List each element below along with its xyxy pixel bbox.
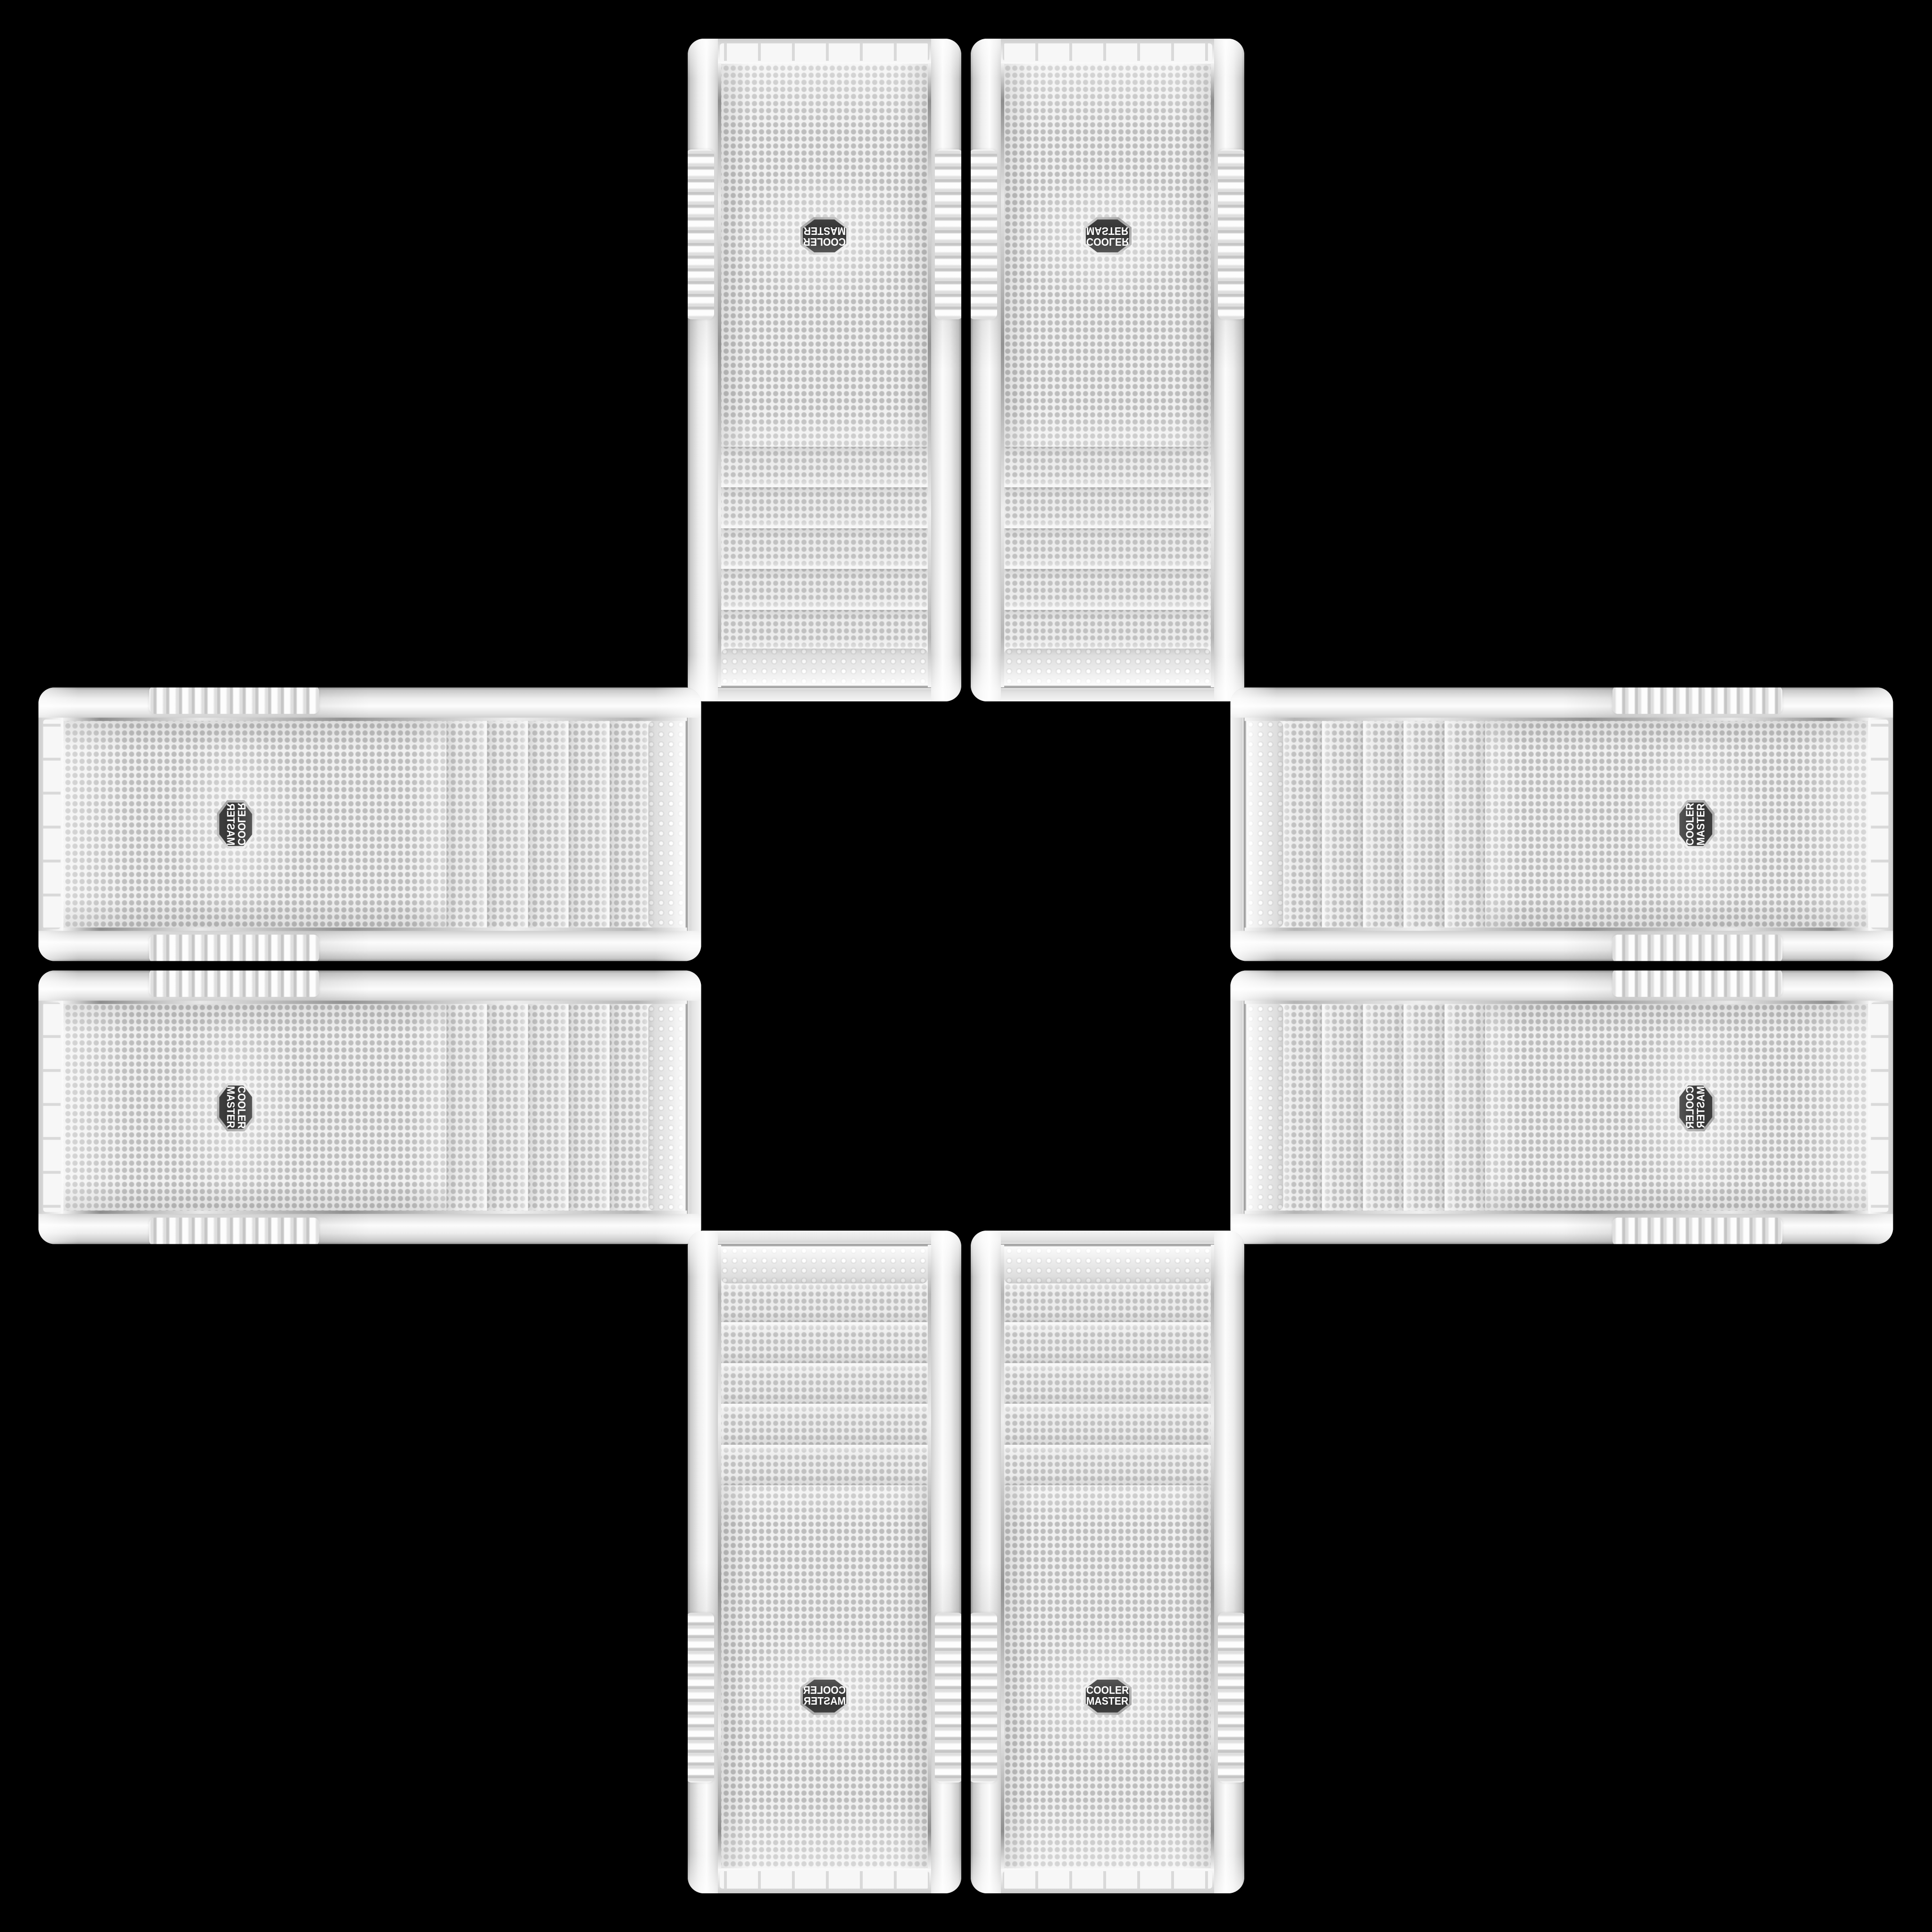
- chrome-trim-bar: [718, 1243, 931, 1247]
- chrome-trim-right: [1245, 718, 1869, 721]
- case-top-cap: [1001, 1231, 1214, 1243]
- case-front-panel: COOLER MASTER: [1231, 721, 1893, 928]
- case-bottom-cap: [718, 39, 931, 64]
- chrome-trim-right: [718, 63, 721, 687]
- side-grip-ribs: [1613, 935, 1782, 961]
- drive-bay-cover: [721, 1447, 928, 1485]
- case-bottom-cap: [718, 1868, 931, 1893]
- drive-bay-cover: [528, 721, 566, 928]
- side-grip-ribs: [150, 1218, 319, 1244]
- drive-bay-cover: [721, 569, 928, 608]
- pc-case-bottom-left: COOLER MASTER: [688, 1231, 961, 1893]
- chrome-trim-left: [63, 928, 687, 931]
- drive-bay-cover: [1406, 1004, 1444, 1211]
- drive-bay-cover: [721, 1406, 928, 1444]
- badge-text-line2: MASTER: [1696, 803, 1707, 845]
- chrome-trim-left: [63, 1001, 687, 1004]
- side-grip-ribs: [935, 1613, 961, 1782]
- badge-text-line2: MASTER: [1086, 225, 1128, 236]
- chrome-trim-bar: [1243, 718, 1247, 931]
- case-side-rail-left: [39, 931, 701, 961]
- case-top-cap: [1001, 689, 1214, 701]
- pc-case-left-bottom: COOLER MASTER: [39, 971, 701, 1244]
- top-vent-mesh: [649, 1004, 685, 1211]
- chrome-trim-bar: [1243, 1001, 1247, 1214]
- pc-case-top-left: COOLER MASTER: [688, 39, 961, 701]
- badge-text-line2: MASTER: [1696, 1086, 1707, 1128]
- drive-bay-covers: [1283, 1004, 1485, 1211]
- side-grip-ribs: [1218, 1613, 1244, 1782]
- chrome-trim-bar: [1001, 1243, 1214, 1247]
- drive-bay-cover: [721, 447, 928, 485]
- case-side-rail-left: [931, 1231, 961, 1893]
- front-mesh-panel: COOLER MASTER: [1004, 1485, 1211, 1868]
- drive-bay-cover: [446, 721, 485, 928]
- drive-bay-covers: [447, 721, 649, 928]
- side-grip-ribs: [971, 150, 997, 319]
- badge-face: COOLER MASTER: [219, 803, 252, 846]
- side-grip-ribs: [150, 971, 319, 997]
- badge-text-line2: MASTER: [225, 803, 236, 845]
- top-vent-mesh: [721, 649, 928, 685]
- badge-text-line1: COOLER: [1086, 236, 1129, 247]
- side-grip-ribs: [150, 688, 319, 714]
- badge-face: COOLER MASTER: [1086, 219, 1129, 252]
- case-front-panel: COOLER MASTER: [39, 721, 701, 928]
- drive-bay-cover: [721, 487, 928, 526]
- cooler-master-badge: COOLER MASTER: [800, 217, 849, 255]
- side-grip-ribs: [688, 150, 714, 319]
- front-mesh-panel: COOLER MASTER: [1004, 64, 1211, 447]
- case-front-panel: COOLER MASTER: [1004, 1231, 1211, 1893]
- badge-text-line2: MASTER: [803, 1696, 845, 1707]
- badge-face: COOLER MASTER: [1086, 1680, 1129, 1713]
- chrome-trim-left: [928, 1245, 931, 1869]
- cooler-master-badge: COOLER MASTER: [217, 800, 255, 849]
- drive-bay-cover: [609, 721, 648, 928]
- front-mesh-panel: COOLER MASTER: [721, 64, 928, 447]
- case-bottom-cap: [1001, 39, 1214, 64]
- case-bottom-cap: [39, 718, 64, 931]
- badge-text-line1: COOLER: [236, 803, 246, 846]
- top-vent-mesh: [721, 1247, 928, 1283]
- drive-bay-cover: [1324, 721, 1363, 928]
- drive-bay-cover: [1004, 1283, 1211, 1322]
- chrome-trim-right: [1211, 1245, 1214, 1869]
- case-side-rail-left: [931, 39, 961, 701]
- drive-bay-cover: [1324, 1004, 1363, 1211]
- case-top-cap: [1231, 1001, 1243, 1214]
- badge-face: COOLER MASTER: [803, 1680, 846, 1713]
- drive-bay-cover: [1365, 721, 1403, 928]
- badge-face: COOLER MASTER: [1679, 803, 1712, 846]
- case-side-rail-right: [39, 688, 701, 718]
- badge-text-line1: COOLER: [1685, 803, 1696, 846]
- badge-text-line2: MASTER: [803, 225, 845, 236]
- drive-bay-cover: [487, 721, 526, 928]
- pc-case-top-right: COOLER MASTER: [971, 39, 1244, 701]
- badge-face: COOLER MASTER: [219, 1086, 252, 1129]
- drive-bay-cover: [487, 1004, 526, 1211]
- drive-bay-covers: [721, 447, 928, 649]
- case-bottom-cap: [1868, 718, 1893, 931]
- pc-case-right-bottom: COOLER MASTER: [1231, 971, 1893, 1244]
- side-grip-ribs: [971, 1613, 997, 1782]
- drive-bay-cover: [528, 1004, 566, 1211]
- drive-bay-cover: [1283, 721, 1322, 928]
- side-grip-ribs: [1218, 150, 1244, 319]
- badge-text-line2: MASTER: [225, 1086, 236, 1128]
- case-side-rail-left: [971, 39, 1001, 701]
- badge-text-line1: COOLER: [1685, 1086, 1696, 1129]
- case-side-rail-right: [1231, 688, 1893, 718]
- chrome-trim-left: [1245, 928, 1869, 931]
- case-front-panel: COOLER MASTER: [721, 1231, 928, 1893]
- pc-case-right-top: COOLER MASTER: [1231, 688, 1893, 961]
- chrome-trim-right: [718, 1245, 721, 1869]
- case-side-rail-left: [971, 1231, 1001, 1893]
- front-mesh-panel: COOLER MASTER: [64, 1004, 447, 1211]
- case-top-cap: [1231, 718, 1243, 931]
- pc-case-left-top: COOLER MASTER: [39, 688, 701, 961]
- badge-face: COOLER MASTER: [803, 219, 846, 252]
- drive-bay-cover: [721, 1283, 928, 1322]
- case-front-panel: COOLER MASTER: [721, 39, 928, 701]
- top-vent-mesh: [1004, 1247, 1211, 1283]
- chrome-trim-left: [928, 63, 931, 687]
- drive-bay-covers: [447, 1004, 649, 1211]
- case-side-rail-left: [1231, 971, 1893, 1001]
- drive-bay-cover: [1283, 1004, 1322, 1211]
- badge-text-line1: COOLER: [236, 1086, 246, 1129]
- side-grip-ribs: [150, 935, 319, 961]
- chrome-trim-right: [63, 718, 687, 721]
- case-top-cap: [718, 689, 931, 701]
- top-vent-mesh: [649, 721, 685, 928]
- chrome-trim-bar: [685, 718, 689, 931]
- case-bottom-cap: [1868, 1001, 1893, 1214]
- cooler-master-badge: COOLER MASTER: [800, 1677, 849, 1715]
- case-top-cap: [718, 1231, 931, 1243]
- front-mesh-panel: COOLER MASTER: [1485, 1004, 1868, 1211]
- chrome-trim-left: [1001, 63, 1004, 687]
- top-vent-mesh: [1247, 1004, 1283, 1211]
- drive-bay-cover: [1004, 1365, 1211, 1404]
- drive-bay-covers: [721, 1283, 928, 1485]
- drive-bay-covers: [1283, 721, 1485, 928]
- side-grip-ribs: [1613, 688, 1782, 714]
- top-vent-mesh: [1247, 721, 1283, 928]
- badge-text-line1: COOLER: [1086, 1685, 1129, 1696]
- case-top-cap: [689, 1001, 701, 1214]
- case-side-rail-left: [39, 971, 701, 1001]
- cooler-master-badge: COOLER MASTER: [1677, 1083, 1715, 1132]
- cooler-master-badge: COOLER MASTER: [1083, 1677, 1132, 1715]
- drive-bay-cover: [721, 528, 928, 567]
- cooler-master-badge: COOLER MASTER: [1083, 217, 1132, 255]
- front-mesh-panel: COOLER MASTER: [1485, 721, 1868, 928]
- top-vent-mesh: [1004, 649, 1211, 685]
- case-side-rail-right: [1231, 1214, 1893, 1244]
- product-collage-canvas: COOLER MASTER: [0, 0, 1932, 1932]
- drive-bay-covers: [1004, 1283, 1211, 1485]
- chrome-trim-right: [1211, 63, 1214, 687]
- badge-face: COOLER MASTER: [1679, 1086, 1712, 1129]
- drive-bay-cover: [721, 1365, 928, 1404]
- cooler-master-badge: COOLER MASTER: [217, 1083, 255, 1132]
- drive-bay-cover: [569, 721, 608, 928]
- drive-bay-cover: [569, 1004, 608, 1211]
- case-bottom-cap: [39, 1001, 64, 1214]
- pc-case-bottom-right: COOLER MASTER: [971, 1231, 1244, 1893]
- chrome-trim-left: [1001, 1245, 1004, 1869]
- drive-bay-cover: [1004, 447, 1211, 485]
- cooler-master-badge: COOLER MASTER: [1677, 800, 1715, 849]
- side-grip-ribs: [1613, 971, 1782, 997]
- case-side-rail-left: [1231, 931, 1893, 961]
- drive-bay-cover: [1406, 721, 1444, 928]
- case-top-cap: [689, 718, 701, 931]
- drive-bay-cover: [1446, 1004, 1485, 1211]
- case-front-panel: COOLER MASTER: [1231, 1004, 1893, 1211]
- drive-bay-cover: [609, 1004, 648, 1211]
- case-bottom-cap: [1001, 1868, 1214, 1893]
- case-side-rail-right: [1214, 1231, 1244, 1893]
- drive-bay-cover: [1004, 1406, 1211, 1444]
- drive-bay-cover: [1004, 487, 1211, 526]
- side-grip-ribs: [1613, 1218, 1782, 1244]
- front-mesh-panel: COOLER MASTER: [64, 721, 447, 928]
- case-side-rail-right: [688, 1231, 718, 1893]
- chrome-trim-bar: [1001, 685, 1214, 689]
- side-grip-ribs: [935, 150, 961, 319]
- drive-bay-cover: [1004, 1447, 1211, 1485]
- badge-text-line1: COOLER: [803, 1685, 846, 1696]
- drive-bay-covers: [1004, 447, 1211, 649]
- drive-bay-cover: [1446, 721, 1485, 928]
- drive-bay-cover: [1004, 610, 1211, 649]
- case-side-rail-right: [688, 39, 718, 701]
- front-mesh-panel: COOLER MASTER: [721, 1485, 928, 1868]
- case-front-panel: COOLER MASTER: [39, 1004, 701, 1211]
- case-front-panel: COOLER MASTER: [1004, 39, 1211, 701]
- chrome-trim-right: [63, 1211, 687, 1214]
- badge-text-line2: MASTER: [1086, 1696, 1128, 1707]
- drive-bay-cover: [721, 1324, 928, 1363]
- case-side-rail-right: [39, 1214, 701, 1244]
- case-side-rail-right: [1214, 39, 1244, 701]
- side-grip-ribs: [688, 1613, 714, 1782]
- drive-bay-cover: [1365, 1004, 1403, 1211]
- chrome-trim-bar: [685, 1001, 689, 1214]
- drive-bay-cover: [446, 1004, 485, 1211]
- drive-bay-cover: [721, 610, 928, 649]
- drive-bay-cover: [1004, 569, 1211, 608]
- drive-bay-cover: [1004, 528, 1211, 567]
- chrome-trim-bar: [718, 685, 931, 689]
- badge-text-line1: COOLER: [803, 236, 846, 247]
- drive-bay-cover: [1004, 1324, 1211, 1363]
- chrome-trim-left: [1245, 1001, 1869, 1004]
- chrome-trim-right: [1245, 1211, 1869, 1214]
